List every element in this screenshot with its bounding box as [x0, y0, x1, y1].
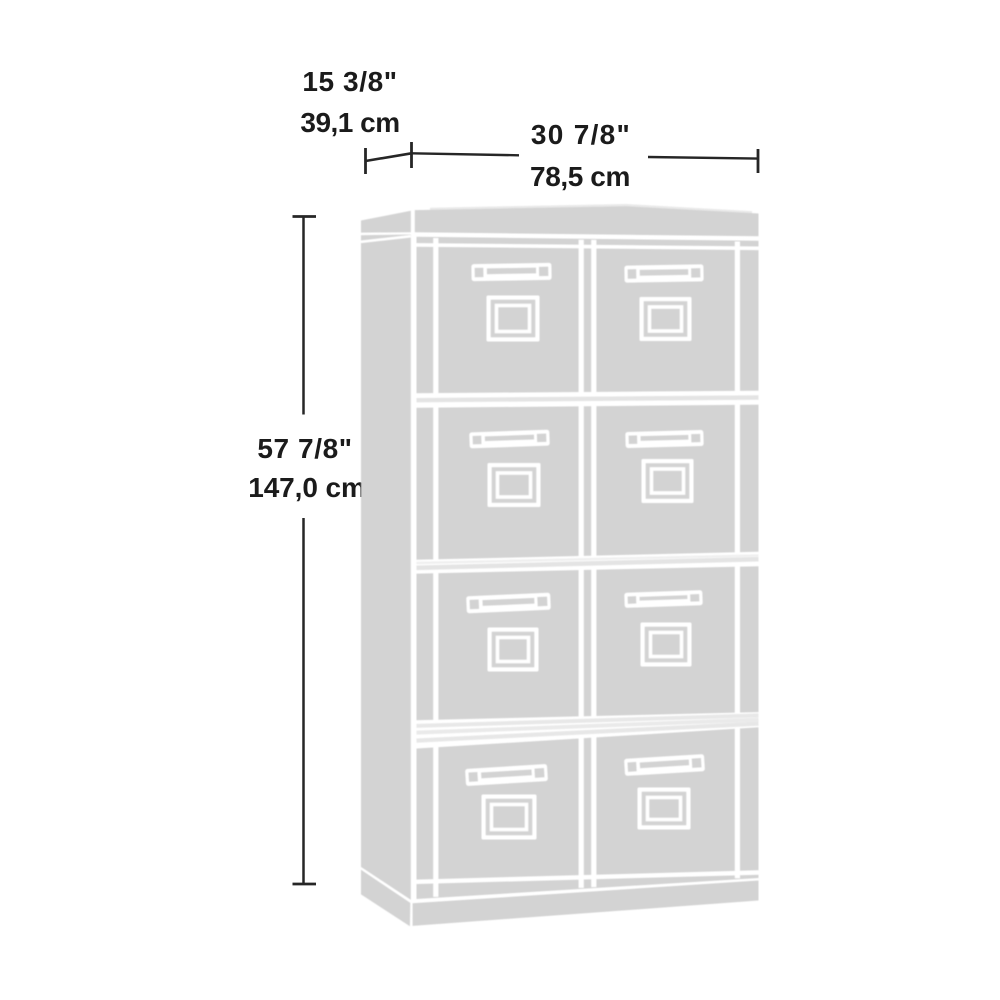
svg-text:78,5 cm: 78,5 cm: [530, 161, 630, 192]
svg-text:30 7/8": 30 7/8": [531, 119, 631, 150]
svg-text:15 3/8": 15 3/8": [302, 66, 397, 97]
svg-text:57 7/8": 57 7/8": [257, 433, 352, 464]
svg-text:39,1 cm: 39,1 cm: [300, 107, 399, 138]
svg-text:147,0 cm: 147,0 cm: [248, 472, 366, 503]
